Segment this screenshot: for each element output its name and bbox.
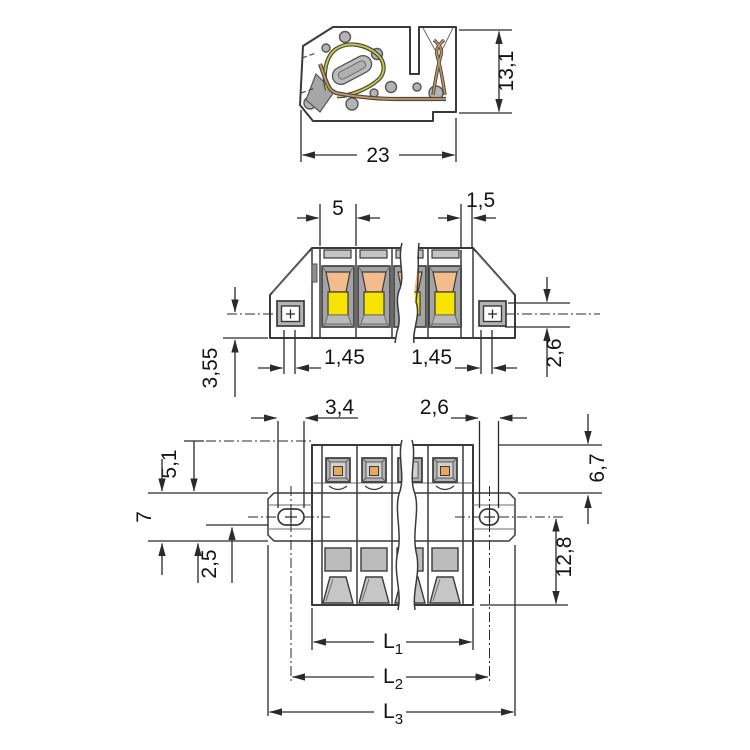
dim-label-3-4: 3,4: [325, 396, 355, 419]
lower-cavity-4: [430, 548, 460, 603]
drawing-page: 13,1 23: [0, 0, 750, 750]
dim-flange-height: 2,6: [505, 277, 570, 377]
pole-window-4: [429, 266, 461, 327]
dim-label-3-55: 3,55: [199, 348, 222, 389]
dim-label-2-5: 2,5: [198, 549, 221, 578]
dim-label-12-8: 12,8: [553, 537, 576, 578]
dim-label-6-7: 6,7: [586, 453, 609, 482]
dim-flange-offset: 2,5: [198, 525, 268, 583]
lower-cavity-2: [359, 548, 389, 603]
dim-pitch: 5: [297, 197, 380, 246]
dim-top-to-flange-left: 5,1: [148, 441, 268, 493]
dim-length-l2: L2: [293, 665, 489, 693]
dim-label-2-6-top: 2,6: [420, 396, 449, 419]
dim-label-7: 7: [133, 511, 156, 523]
dim-label-1-45-right: 1,45: [411, 346, 452, 369]
section-obround: [329, 53, 374, 88]
dim-label-23: 23: [366, 144, 389, 167]
front-view: 5 1,5 1,45 1,45 3,55: [199, 189, 600, 397]
contact-square-2: [362, 458, 386, 490]
dim-label-13-1: 13,1: [495, 51, 518, 92]
dim-section-height: 13,1: [459, 30, 518, 113]
flange-hole-left: [277, 301, 304, 326]
dim-label-l3: L3: [383, 700, 403, 728]
lower-cavity-1: [323, 548, 353, 603]
dim-length-l1: L1: [312, 608, 473, 658]
contact-square-4: [433, 458, 457, 490]
technical-drawing: 13,1 23: [0, 0, 750, 750]
dim-label-5: 5: [332, 197, 344, 220]
pole-window-1: [322, 266, 354, 327]
dim-label-1-5: 1,5: [466, 189, 495, 212]
dim-bottom-to-center: 3,55: [199, 287, 268, 397]
contact-square-1: [326, 458, 350, 490]
pole-window-2: [358, 266, 390, 327]
dim-center-to-bottom: 12,8: [480, 519, 576, 605]
dim-end-wall: 1,5: [438, 189, 496, 248]
dim-label-l1: L1: [383, 630, 403, 658]
dim-offset-right: 1,45: [411, 330, 517, 374]
side-section-view: 13,1 23: [300, 27, 518, 167]
flange-hole-right: [479, 301, 506, 326]
top-view: 3,4 2,6 5,1 7 2,5: [133, 396, 609, 728]
dim-label-l2: L2: [383, 665, 403, 693]
dim-label-1-45-left: 1,45: [324, 346, 365, 369]
dim-slot-left: 3,4: [251, 396, 358, 508]
dim-label-2-6-front: 2,6: [543, 338, 566, 367]
